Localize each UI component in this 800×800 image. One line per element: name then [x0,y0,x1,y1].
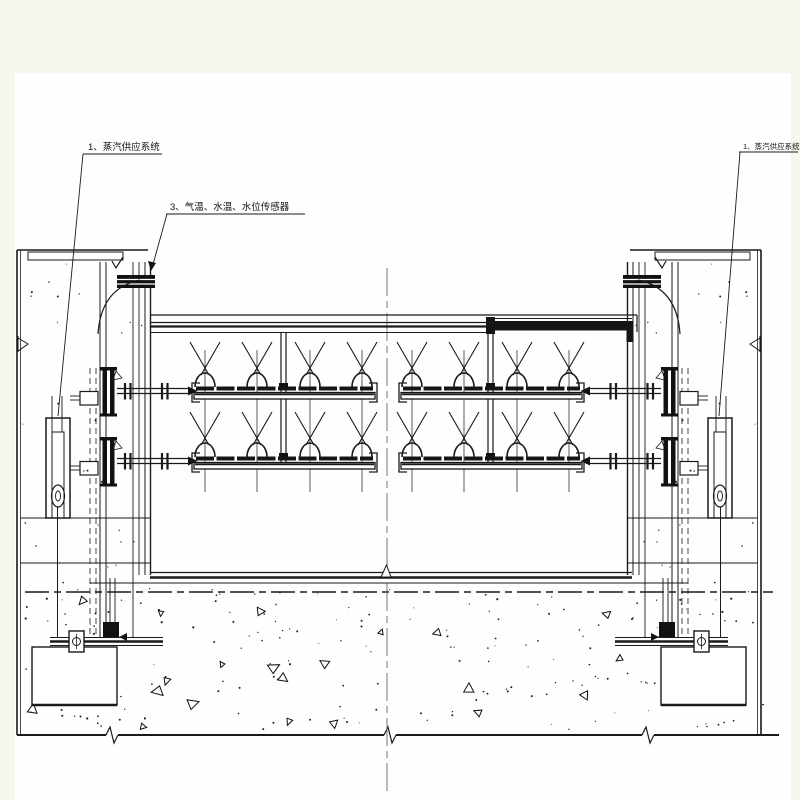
label-steam-supply-left: 1、蒸汽供应系统 [88,141,160,153]
header-pipe [490,321,630,331]
gate-heating-system-drawing: 1、蒸汽供应系统 3、气温、水温、水位传感器 1、蒸汽供应系统 [0,0,800,800]
label-steam-supply-right: 1、蒸汽供应系统 [743,141,800,151]
label-sensors: 3、气温、水温、水位传感器 [170,201,290,213]
engineering-drawing-canvas: 1、蒸汽供应系统 3、气温、水温、水位传感器 1、蒸汽供应系统 [0,0,800,800]
